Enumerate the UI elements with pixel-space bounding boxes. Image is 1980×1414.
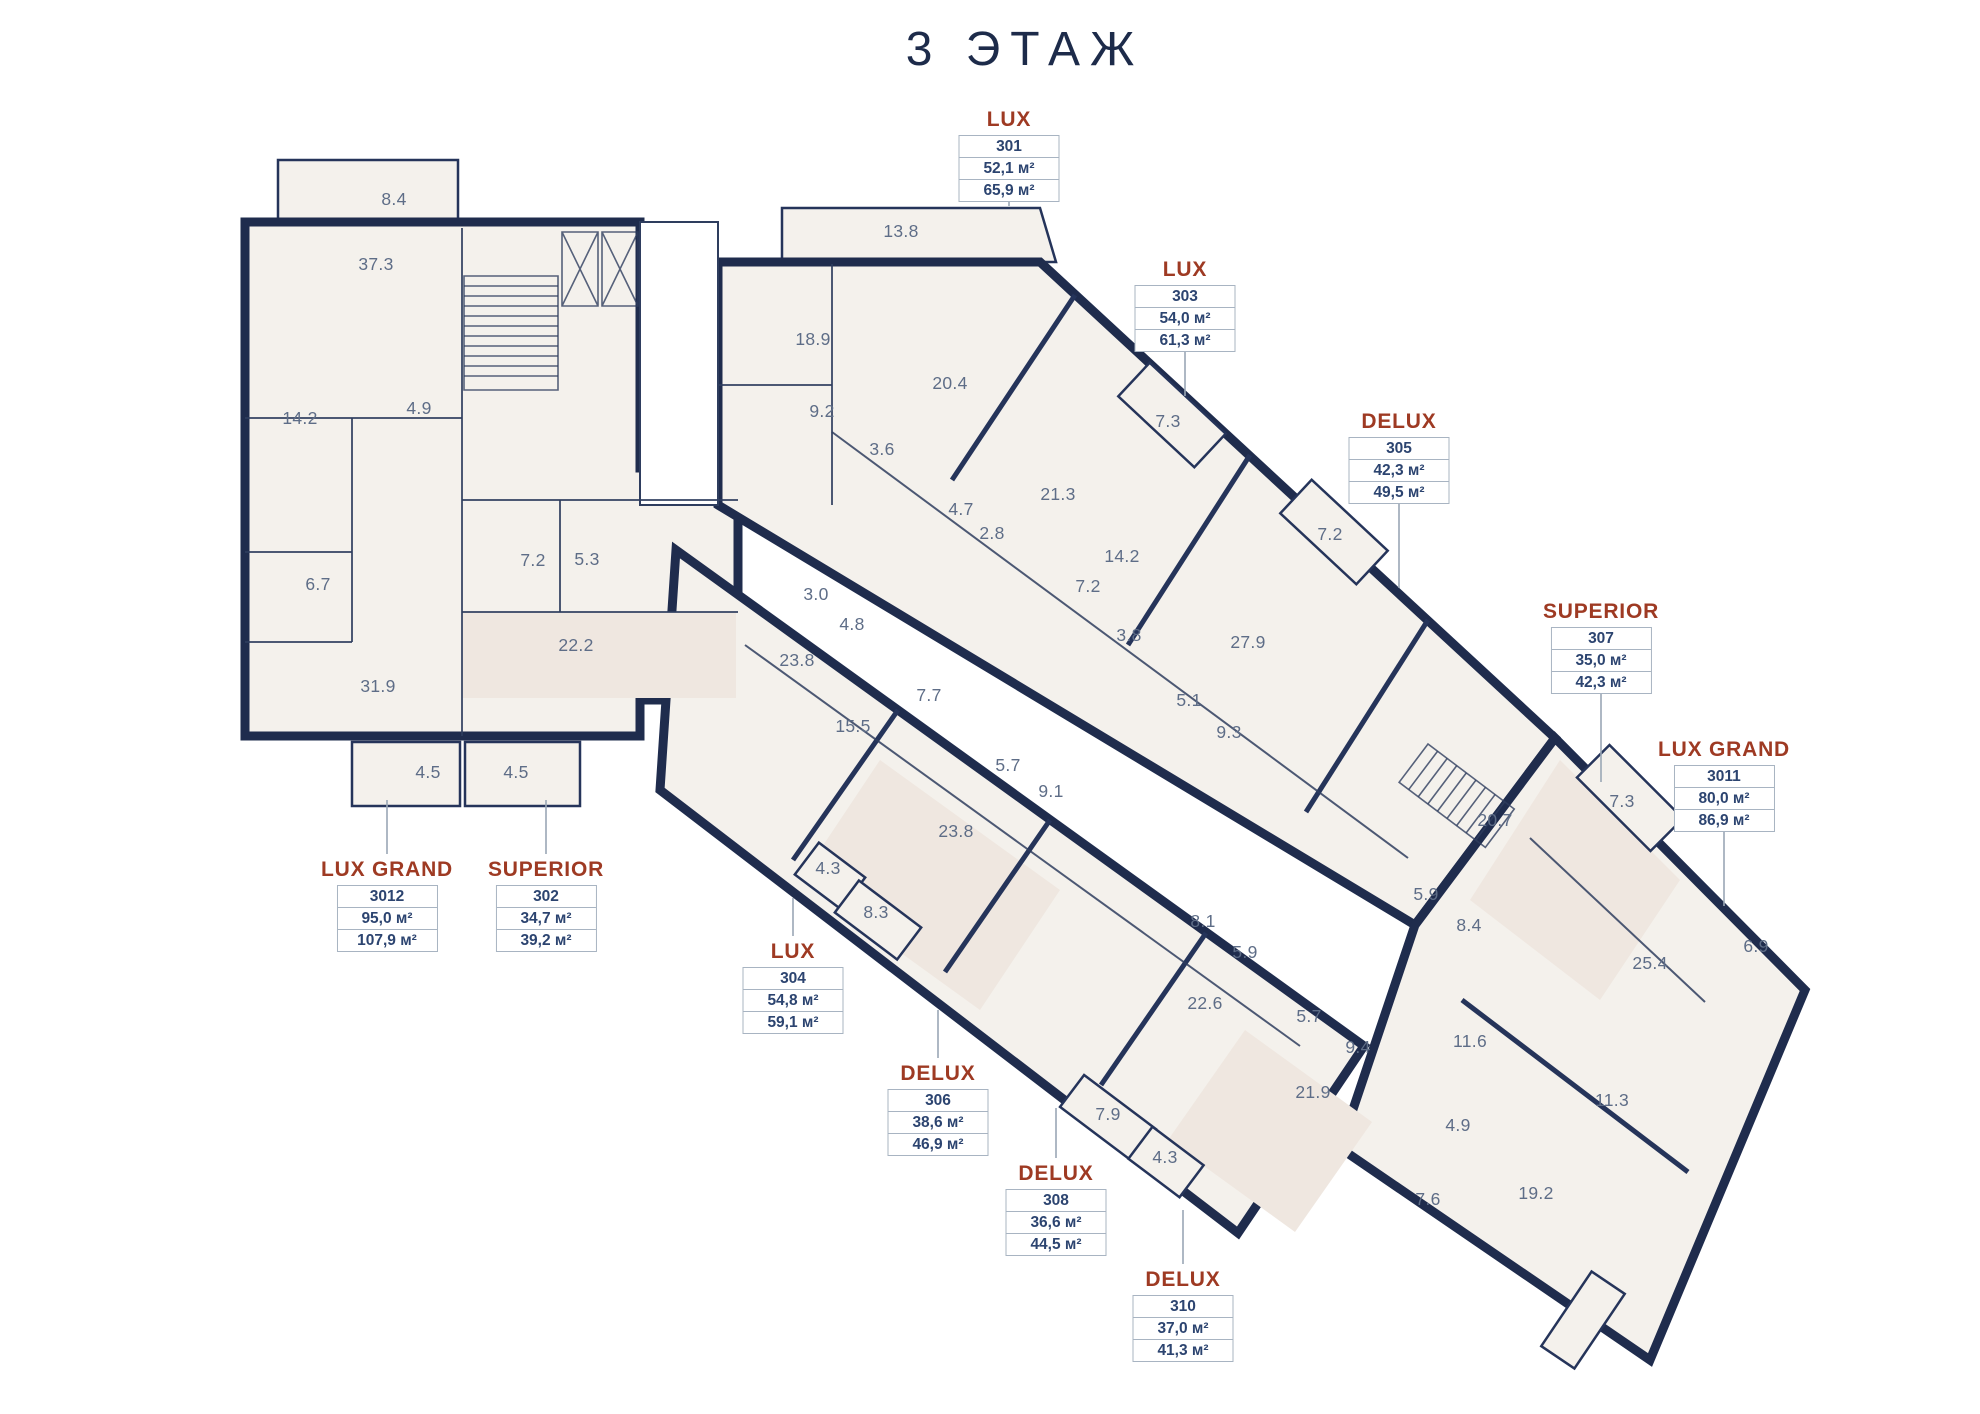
unit-area-total: 39,2 м² (497, 929, 596, 951)
unit-info-box: 30638,6 м²46,9 м² (888, 1089, 989, 1156)
unit-area-total: 61,3 м² (1136, 329, 1235, 351)
unit-number: 304 (744, 968, 843, 989)
unit-area-living: 37,0 м² (1134, 1317, 1233, 1339)
unit-info-box: 30735,0 м²42,3 м² (1551, 627, 1652, 694)
unit-label-303[interactable]: LUX30354,0 м²61,3 м² (1135, 258, 1236, 352)
unit-area-total: 59,1 м² (744, 1011, 843, 1033)
unit-label-304[interactable]: LUX30454,8 м²59,1 м² (743, 940, 844, 1034)
unit-info-box: 30454,8 м²59,1 м² (743, 967, 844, 1034)
unit-number: 303 (1136, 286, 1235, 307)
unit-type-label: DELUX (888, 1062, 989, 1086)
unit-type-label: DELUX (1349, 410, 1450, 434)
unit-area-living: 34,7 м² (497, 907, 596, 929)
floor-plan-page: 3 ЭТАЖ (0, 0, 1980, 1414)
unit-info-box: 30542,3 м²49,5 м² (1349, 437, 1450, 504)
unit-type-label: SUPERIOR (1543, 600, 1659, 624)
unit-info-box: 301295,0 м²107,9 м² (337, 885, 438, 952)
unit-number: 305 (1350, 438, 1449, 459)
unit-area-total: 65,9 м² (960, 179, 1059, 201)
unit-area-living: 35,0 м² (1552, 649, 1651, 671)
unit-area-total: 46,9 м² (889, 1133, 988, 1155)
unit-label-308[interactable]: DELUX30836,6 м²44,5 м² (1006, 1162, 1107, 1256)
unit-labels-layer: LUX30152,1 м²65,9 м²LUX30354,0 м²61,3 м²… (0, 0, 1980, 1414)
unit-type-label: DELUX (1133, 1268, 1234, 1292)
unit-label-301[interactable]: LUX30152,1 м²65,9 м² (959, 108, 1060, 202)
unit-info-box: 301180,0 м²86,9 м² (1674, 765, 1775, 832)
unit-number: 306 (889, 1090, 988, 1111)
unit-area-living: 38,6 м² (889, 1111, 988, 1133)
unit-label-3011[interactable]: LUX GRAND301180,0 м²86,9 м² (1658, 738, 1790, 832)
unit-label-310[interactable]: DELUX31037,0 м²41,3 м² (1133, 1268, 1234, 1362)
unit-area-living: 80,0 м² (1675, 787, 1774, 809)
unit-info-box: 30836,6 м²44,5 м² (1006, 1189, 1107, 1256)
unit-area-living: 95,0 м² (338, 907, 437, 929)
unit-info-box: 30234,7 м²39,2 м² (496, 885, 597, 952)
unit-type-label: LUX GRAND (321, 858, 453, 882)
unit-label-307[interactable]: SUPERIOR30735,0 м²42,3 м² (1543, 600, 1659, 694)
unit-number: 302 (497, 886, 596, 907)
unit-area-living: 42,3 м² (1350, 459, 1449, 481)
unit-info-box: 30354,0 м²61,3 м² (1135, 285, 1236, 352)
unit-number: 301 (960, 136, 1059, 157)
unit-area-living: 52,1 м² (960, 157, 1059, 179)
unit-label-306[interactable]: DELUX30638,6 м²46,9 м² (888, 1062, 989, 1156)
unit-area-total: 42,3 м² (1552, 671, 1651, 693)
unit-type-label: LUX (743, 940, 844, 964)
unit-area-total: 49,5 м² (1350, 481, 1449, 503)
unit-area-living: 54,8 м² (744, 989, 843, 1011)
unit-info-box: 30152,1 м²65,9 м² (959, 135, 1060, 202)
unit-label-302[interactable]: SUPERIOR30234,7 м²39,2 м² (488, 858, 604, 952)
unit-number: 307 (1552, 628, 1651, 649)
unit-number: 310 (1134, 1296, 1233, 1317)
unit-type-label: LUX (1135, 258, 1236, 282)
unit-area-total: 44,5 м² (1007, 1233, 1106, 1255)
unit-number: 3011 (1675, 766, 1774, 787)
unit-info-box: 31037,0 м²41,3 м² (1133, 1295, 1234, 1362)
unit-area-living: 54,0 м² (1136, 307, 1235, 329)
unit-type-label: SUPERIOR (488, 858, 604, 882)
unit-type-label: DELUX (1006, 1162, 1107, 1186)
unit-number: 308 (1007, 1190, 1106, 1211)
unit-area-total: 86,9 м² (1675, 809, 1774, 831)
unit-area-living: 36,6 м² (1007, 1211, 1106, 1233)
unit-type-label: LUX (959, 108, 1060, 132)
unit-area-total: 41,3 м² (1134, 1339, 1233, 1361)
unit-label-305[interactable]: DELUX30542,3 м²49,5 м² (1349, 410, 1450, 504)
unit-area-total: 107,9 м² (338, 929, 437, 951)
unit-number: 3012 (338, 886, 437, 907)
unit-type-label: LUX GRAND (1658, 738, 1790, 762)
unit-label-3012[interactable]: LUX GRAND301295,0 м²107,9 м² (321, 858, 453, 952)
